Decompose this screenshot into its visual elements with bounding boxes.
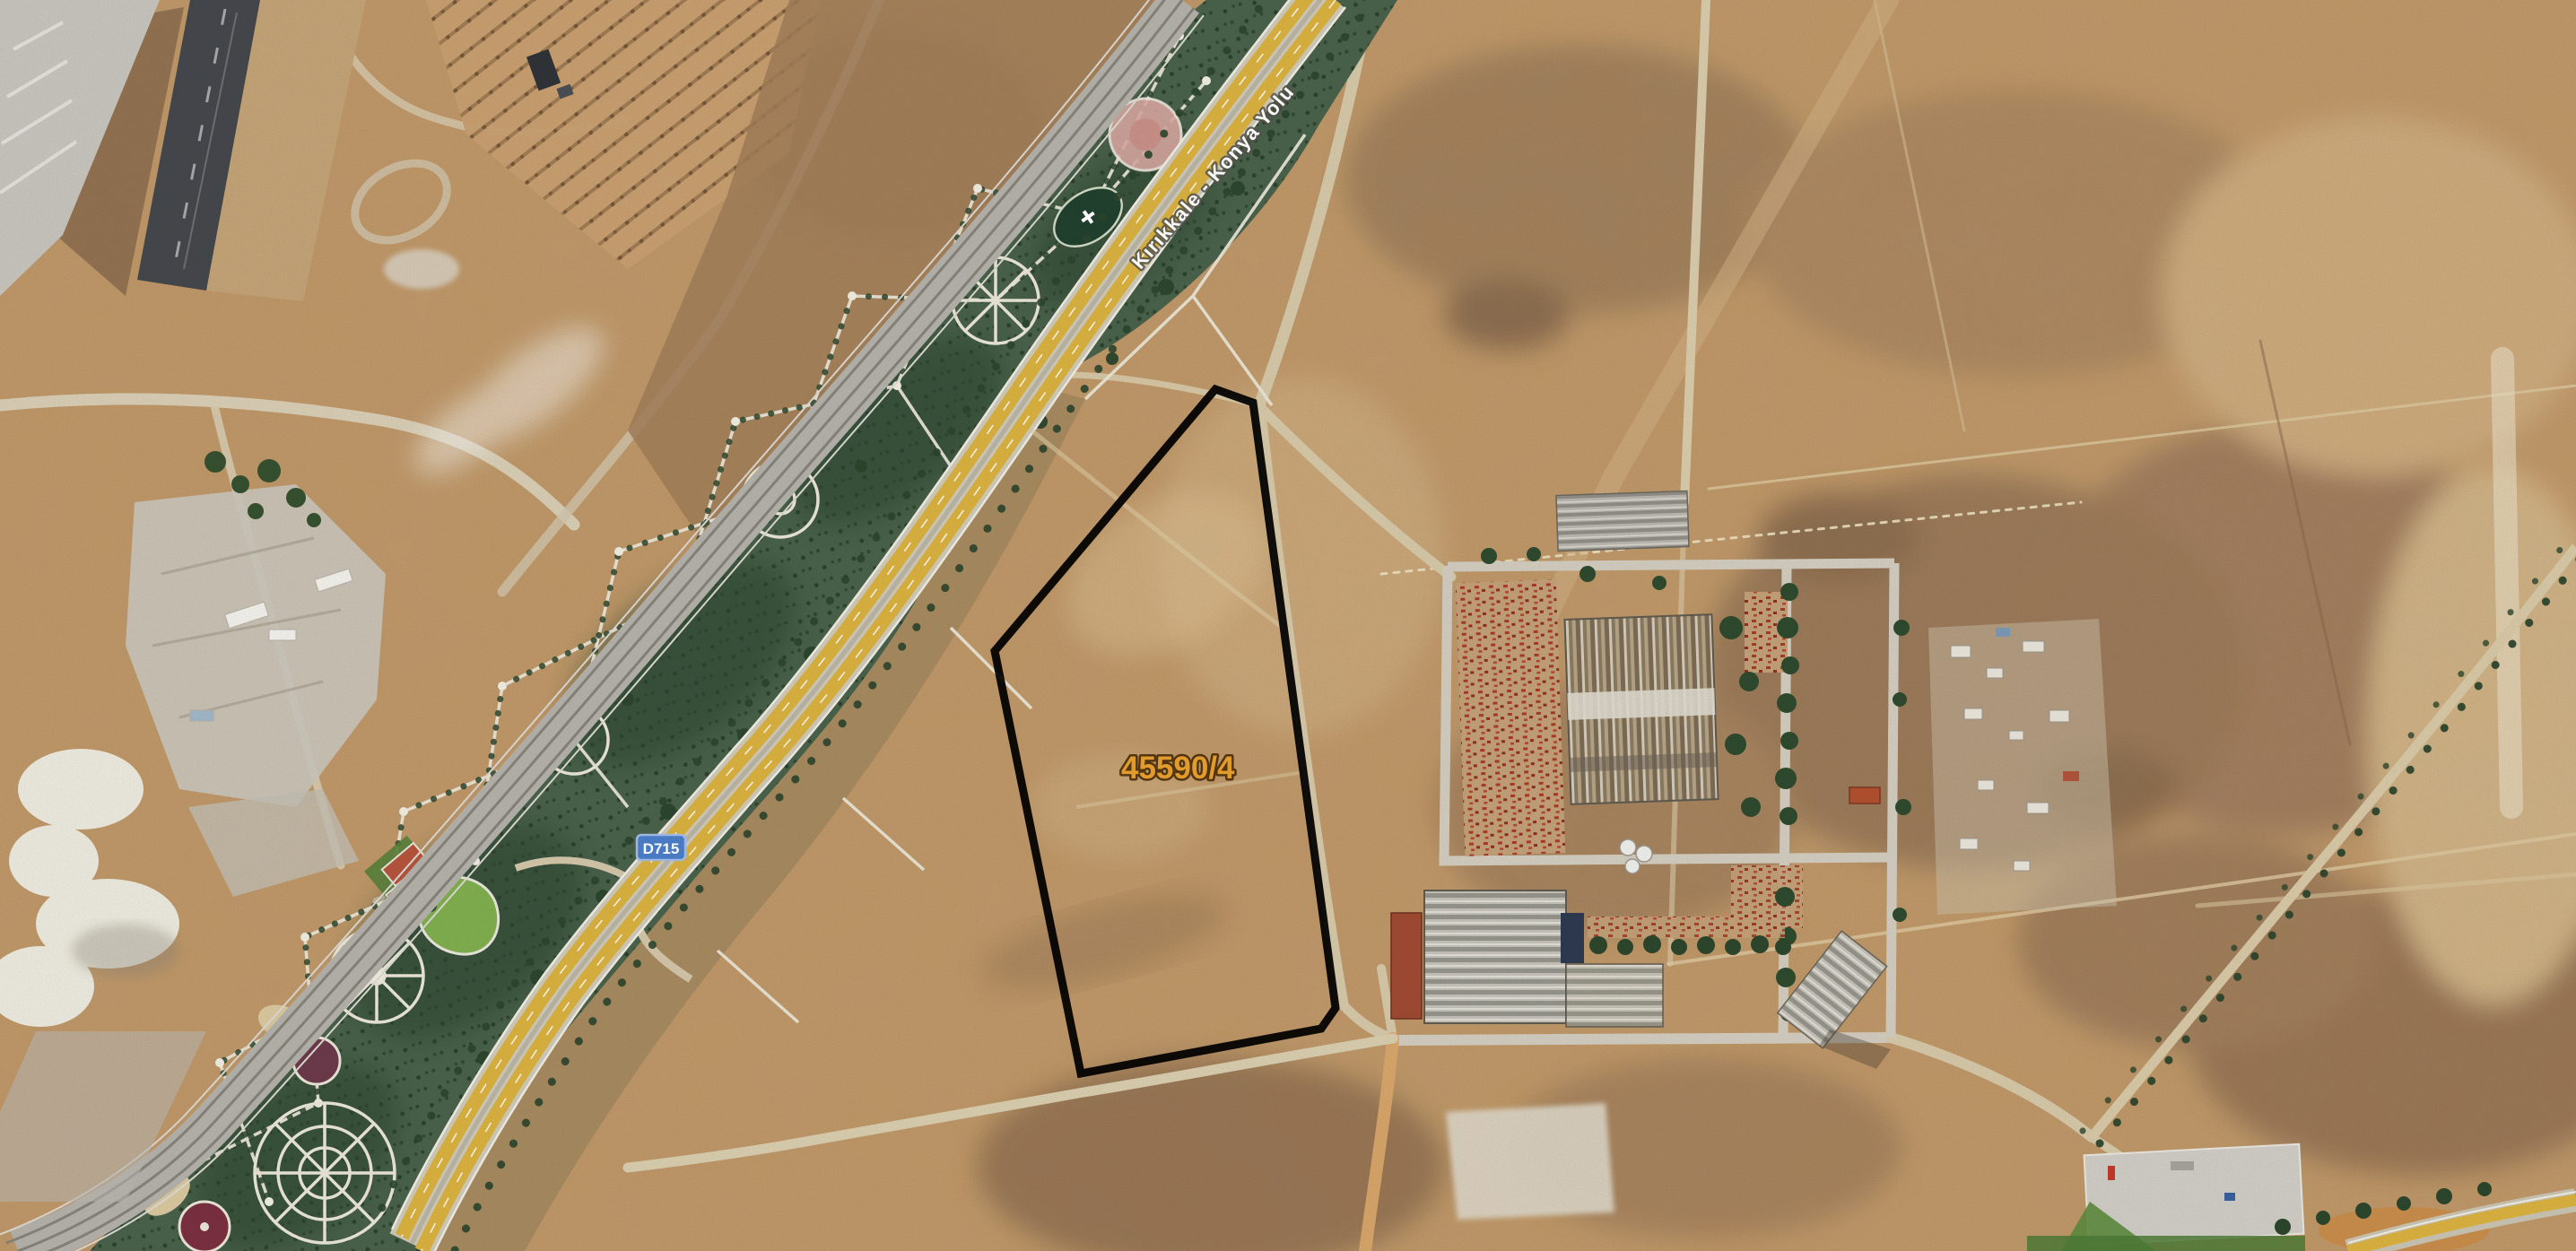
satellite-canvas[interactable]: Kırıkkale - Konya Yolu Kırıkkale - Konya… — [0, 0, 2576, 1251]
satellite-map[interactable]: Kırıkkale - Konya Yolu Kırıkkale - Konya… — [0, 0, 2576, 1251]
grain-overlay-light — [0, 0, 2576, 1251]
